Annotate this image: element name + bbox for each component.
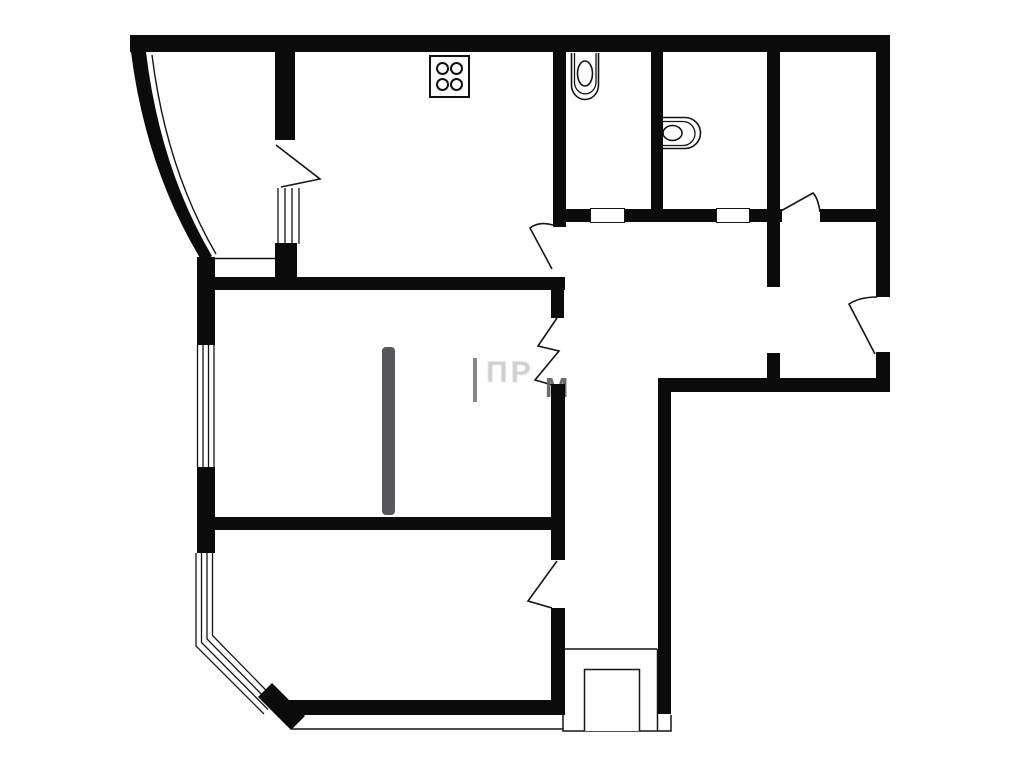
- wall-wc-left: [553, 52, 566, 227]
- wall-hall-west-c: [551, 608, 565, 715]
- wall-bottom: [288, 700, 565, 715]
- washbasin-oval: [663, 126, 682, 141]
- wall-wc-bath-divider: [651, 52, 663, 213]
- wall-partition-stub: [275, 243, 297, 290]
- wall-hall-south: [658, 378, 890, 392]
- door-closet: [779, 193, 820, 212]
- toilet-outer: [572, 53, 599, 100]
- door-bay-room: [276, 145, 320, 187]
- toilet-inner: [575, 53, 597, 94]
- stove-burner: [436, 62, 449, 75]
- wc-door-threshold: [590, 208, 625, 223]
- window-bay-lower: [196, 553, 276, 714]
- watermark-bar: [473, 358, 477, 402]
- wall-sanitary-south-b: [625, 209, 716, 222]
- door-entrance: [849, 297, 877, 354]
- floor-plan: ПР М: [0, 0, 1023, 768]
- bay-glazing-line: [152, 55, 216, 254]
- washbasin-inner: [660, 122, 696, 146]
- wall-left-b: [197, 467, 215, 553]
- wall-mid-lower: [198, 517, 565, 530]
- wall-sanitary-south-c: [750, 209, 782, 222]
- stove-icon: [429, 55, 470, 98]
- wall-right-lower: [658, 378, 671, 714]
- window-left-upper: [198, 345, 215, 467]
- door-kitchen: [530, 224, 553, 269]
- window-partition: [278, 188, 299, 244]
- entry-recess-outer: [563, 649, 671, 731]
- wall-closet-left: [767, 52, 780, 287]
- washbasin-outer: [658, 118, 701, 149]
- door-living-room: [528, 561, 557, 608]
- wall-right-upper: [876, 35, 890, 297]
- wardrobe-strip: [382, 347, 395, 515]
- bath-door-threshold: [716, 208, 750, 223]
- bay-curved-wall: [131, 52, 212, 263]
- entry-recess-inner: [585, 670, 640, 732]
- wall-hall-west-b: [551, 384, 565, 560]
- stove-burner: [436, 78, 449, 91]
- watermark-text-fragment: ПР: [486, 356, 534, 390]
- wall-sanitary-south-d: [820, 209, 878, 222]
- toilet-bowl: [578, 61, 593, 86]
- wall-top: [130, 35, 890, 52]
- wall-left-a: [197, 257, 215, 345]
- stove-burner: [450, 62, 463, 75]
- stove-burner: [450, 78, 463, 91]
- wall-partition-upper: [275, 52, 295, 140]
- wall-sanitary-south-a: [566, 209, 590, 222]
- wall-mid-upper: [198, 277, 565, 290]
